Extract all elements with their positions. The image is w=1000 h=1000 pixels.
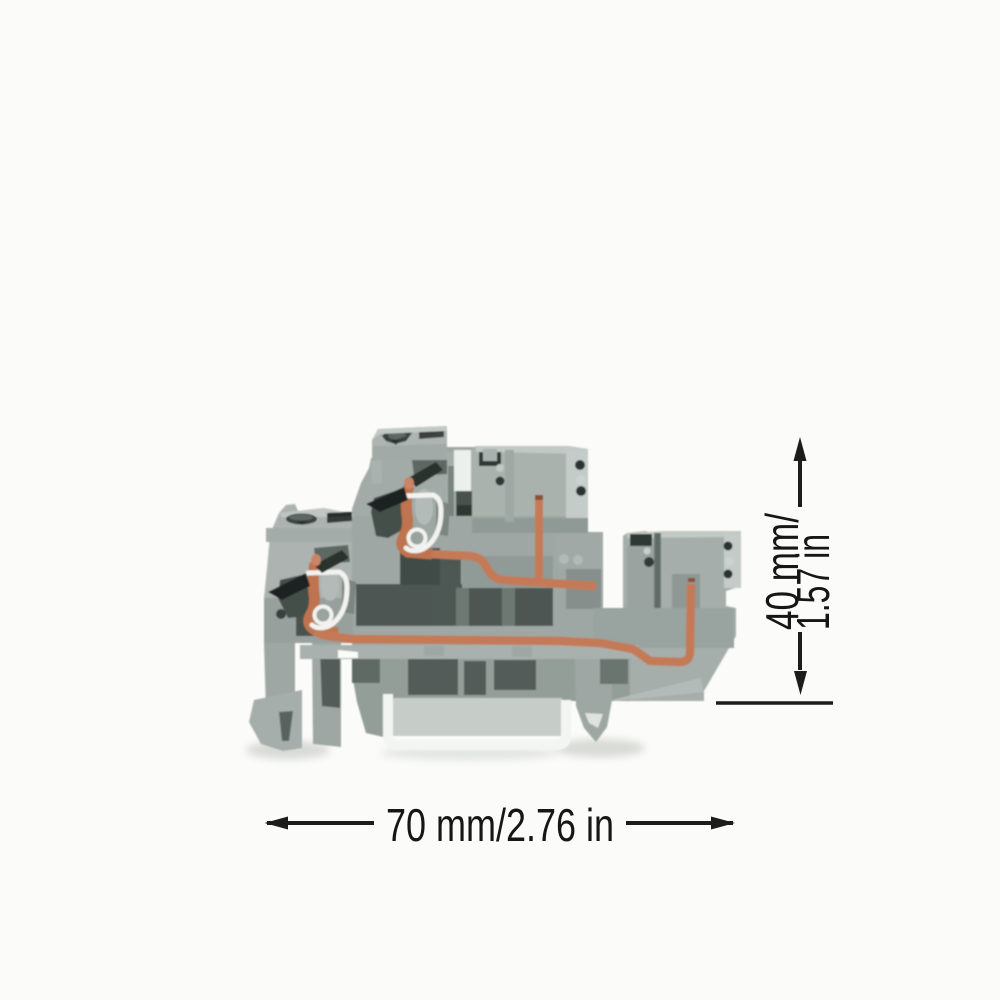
svg-text:70 mm/2.76 in: 70 mm/2.76 in — [386, 799, 614, 851]
svg-text:1.57 in: 1.57 in — [787, 534, 839, 630]
